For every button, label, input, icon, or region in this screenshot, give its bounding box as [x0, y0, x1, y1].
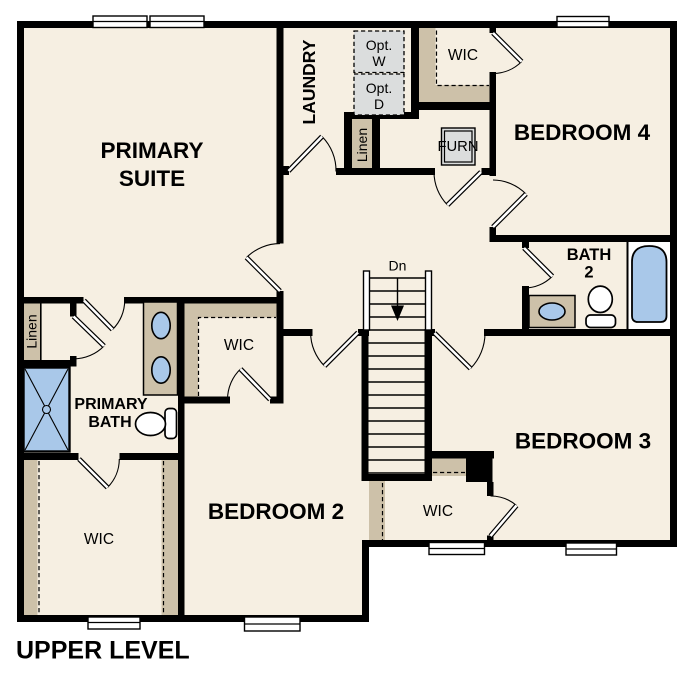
svg-text:BEDROOM 4: BEDROOM 4	[514, 120, 651, 145]
svg-text:WIC: WIC	[448, 47, 478, 64]
svg-text:D: D	[374, 96, 384, 112]
svg-text:BATH: BATH	[88, 414, 131, 431]
svg-text:LAUNDRY: LAUNDRY	[299, 39, 319, 124]
svg-text:Dn: Dn	[389, 258, 407, 274]
svg-text:W: W	[372, 53, 386, 69]
svg-text:BEDROOM 2: BEDROOM 2	[208, 499, 344, 524]
svg-text:Linen: Linen	[354, 128, 370, 162]
svg-text:WIC: WIC	[224, 337, 254, 354]
svg-text:FURN: FURN	[437, 139, 478, 155]
svg-text:WIC: WIC	[84, 531, 114, 548]
svg-text:2: 2	[584, 264, 593, 282]
svg-text:Linen: Linen	[24, 314, 40, 348]
svg-text:UPPER LEVEL: UPPER LEVEL	[16, 637, 190, 665]
svg-text:SUITE: SUITE	[119, 166, 185, 191]
svg-text:Opt.: Opt.	[366, 37, 392, 53]
svg-text:WIC: WIC	[423, 503, 453, 520]
svg-text:BEDROOM 3: BEDROOM 3	[515, 429, 651, 454]
svg-text:BATH: BATH	[567, 246, 612, 264]
svg-text:PRIMARY: PRIMARY	[74, 396, 148, 413]
svg-text:PRIMARY: PRIMARY	[101, 138, 204, 163]
svg-text:Opt.: Opt.	[366, 80, 392, 96]
